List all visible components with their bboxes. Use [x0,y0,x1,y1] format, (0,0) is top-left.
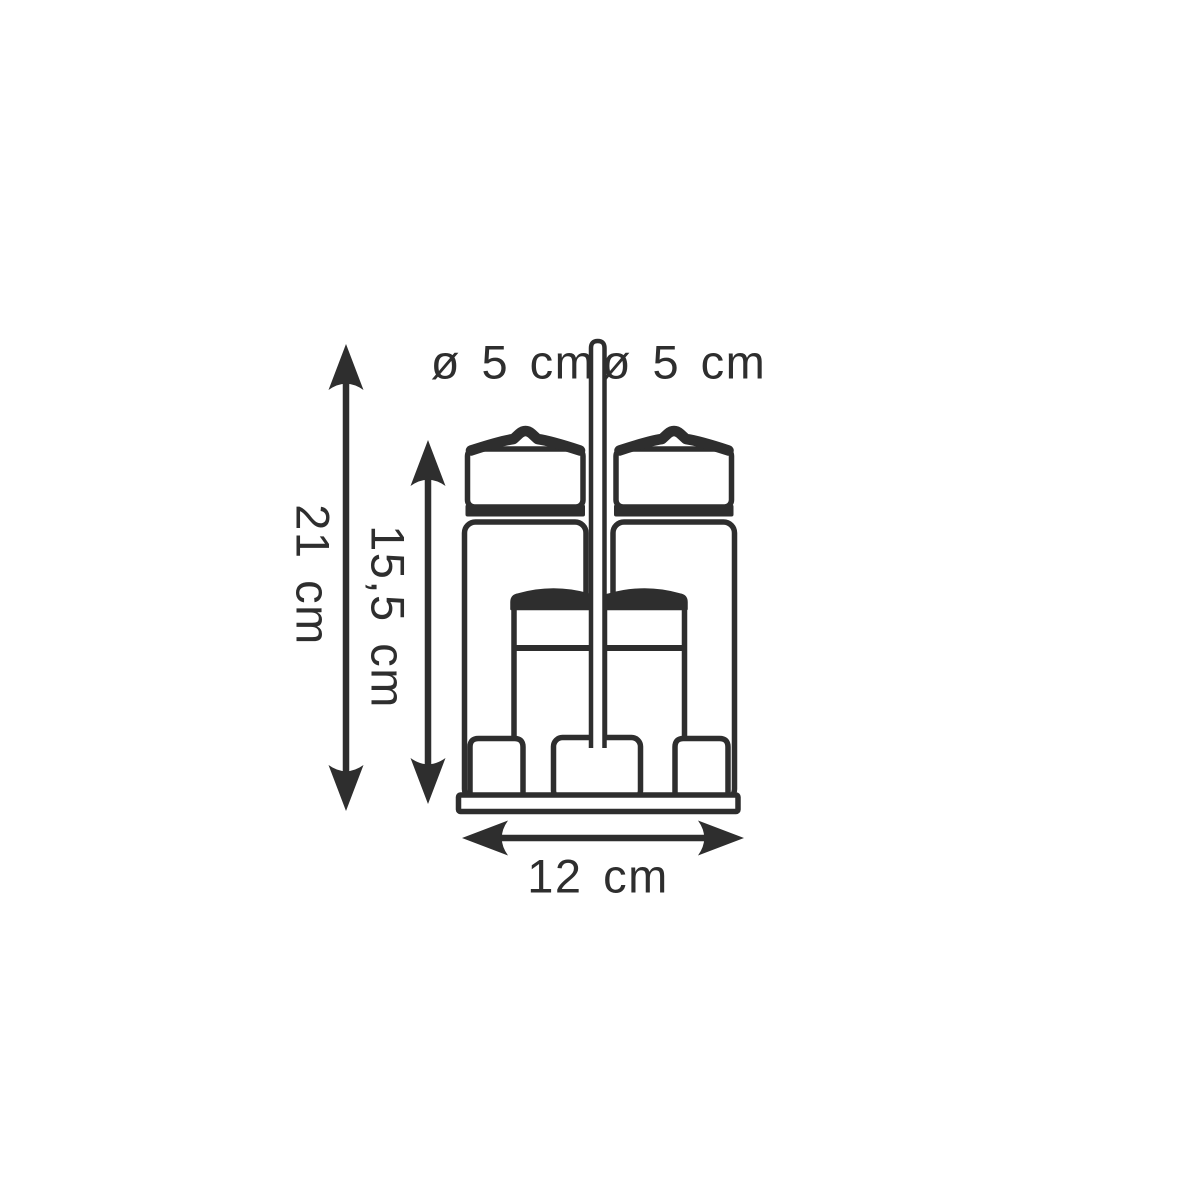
rear-left-shaker-cap-rim [466,505,586,517]
total-height-arrowhead-top-icon [329,344,364,390]
diagram-canvas: 21 cm 15,5 cm 12 cm ø 5 cm ø 5 cm [0,0,1200,1200]
bottle-height-arrowhead-bottom-icon [411,758,446,804]
bottle-height-label: 15,5 cm [362,525,415,709]
front-right-shaker-cap [603,590,687,610]
base-width-label: 12 cm [527,849,669,902]
stand-right-bracket [675,739,728,800]
dimension-total-height: 21 cm [287,344,364,811]
cruet-set-dimension-diagram: 21 cm 15,5 cm 12 cm ø 5 cm ø 5 cm [0,0,1200,1200]
base-width-arrowhead-right-icon [698,821,744,856]
base-width-arrowhead-left-icon [462,821,508,856]
total-height-label: 21 cm [287,504,340,646]
total-height-arrowhead-bottom-icon [329,765,364,811]
diameter-right-label: ø 5 cm [602,335,767,388]
stand-base-plate [459,795,739,812]
diameter-left-label: ø 5 cm [431,335,596,388]
dimension-bottle-height: 15,5 cm [362,440,446,804]
front-left-shaker-cap [512,590,596,610]
rear-right-shaker-cap [616,449,732,507]
bottle-height-arrowhead-top-icon [411,440,446,486]
stand-left-bracket [470,739,523,800]
stand-post [591,341,605,748]
rear-left-shaker-cap [468,449,584,507]
dimension-base-width: 12 cm [462,821,744,903]
rear-right-shaker-cap-rim [614,505,734,517]
